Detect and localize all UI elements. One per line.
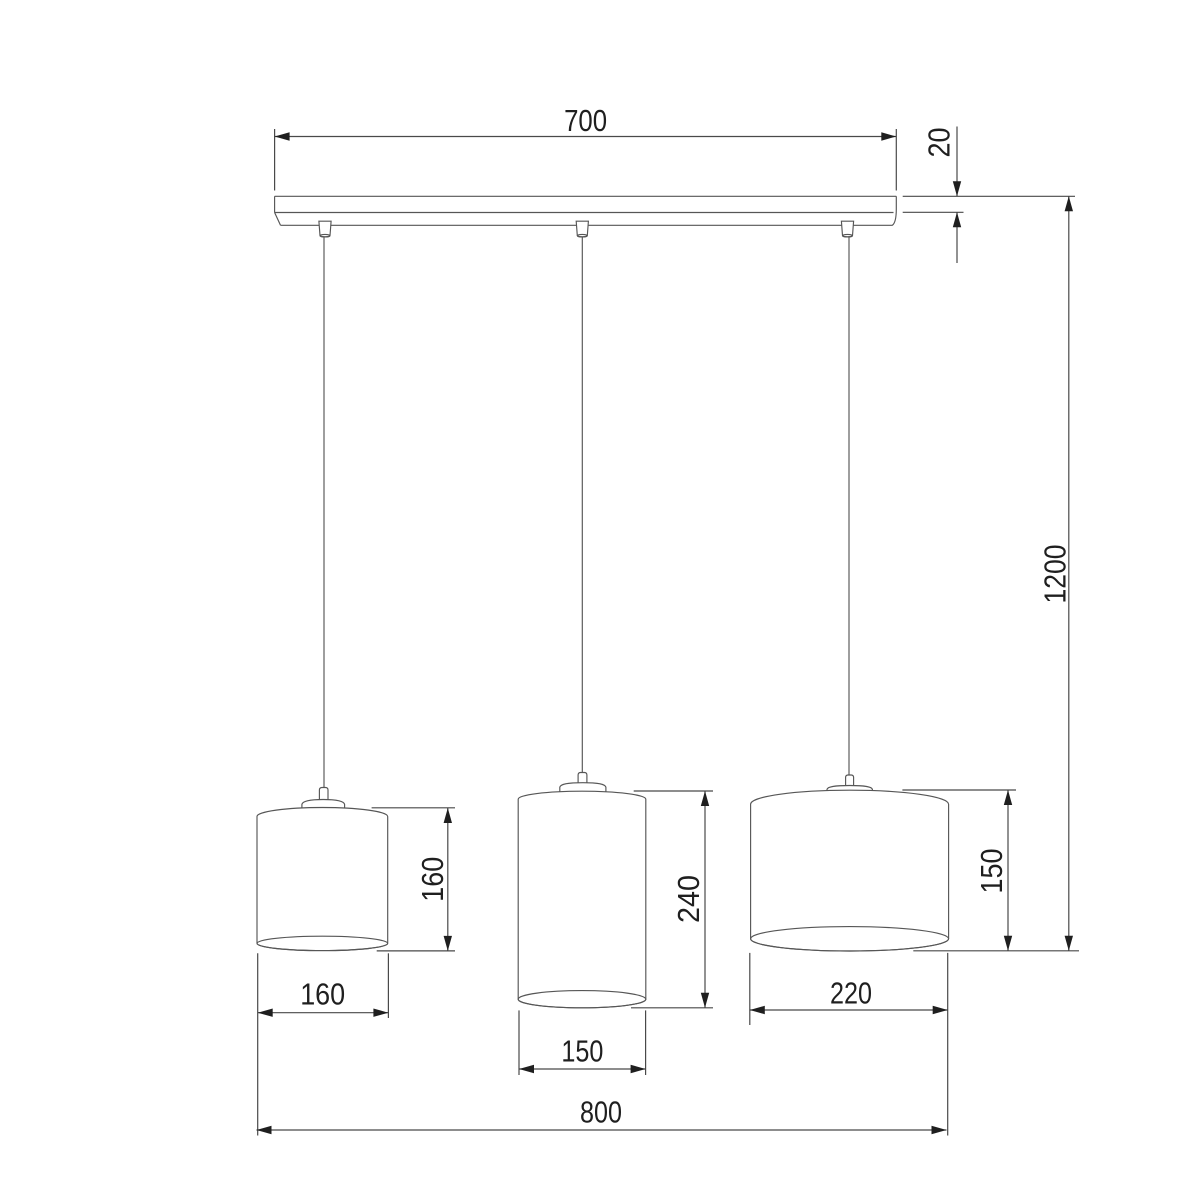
- svg-text:700: 700: [564, 103, 607, 138]
- svg-text:800: 800: [580, 1095, 622, 1130]
- svg-text:150: 150: [561, 1033, 603, 1068]
- svg-text:240: 240: [671, 875, 706, 923]
- svg-text:20: 20: [921, 128, 956, 158]
- svg-text:160: 160: [300, 977, 345, 1012]
- svg-text:160: 160: [415, 857, 450, 902]
- svg-text:220: 220: [830, 976, 872, 1011]
- svg-text:1200: 1200: [1037, 545, 1072, 604]
- svg-text:150: 150: [974, 849, 1009, 894]
